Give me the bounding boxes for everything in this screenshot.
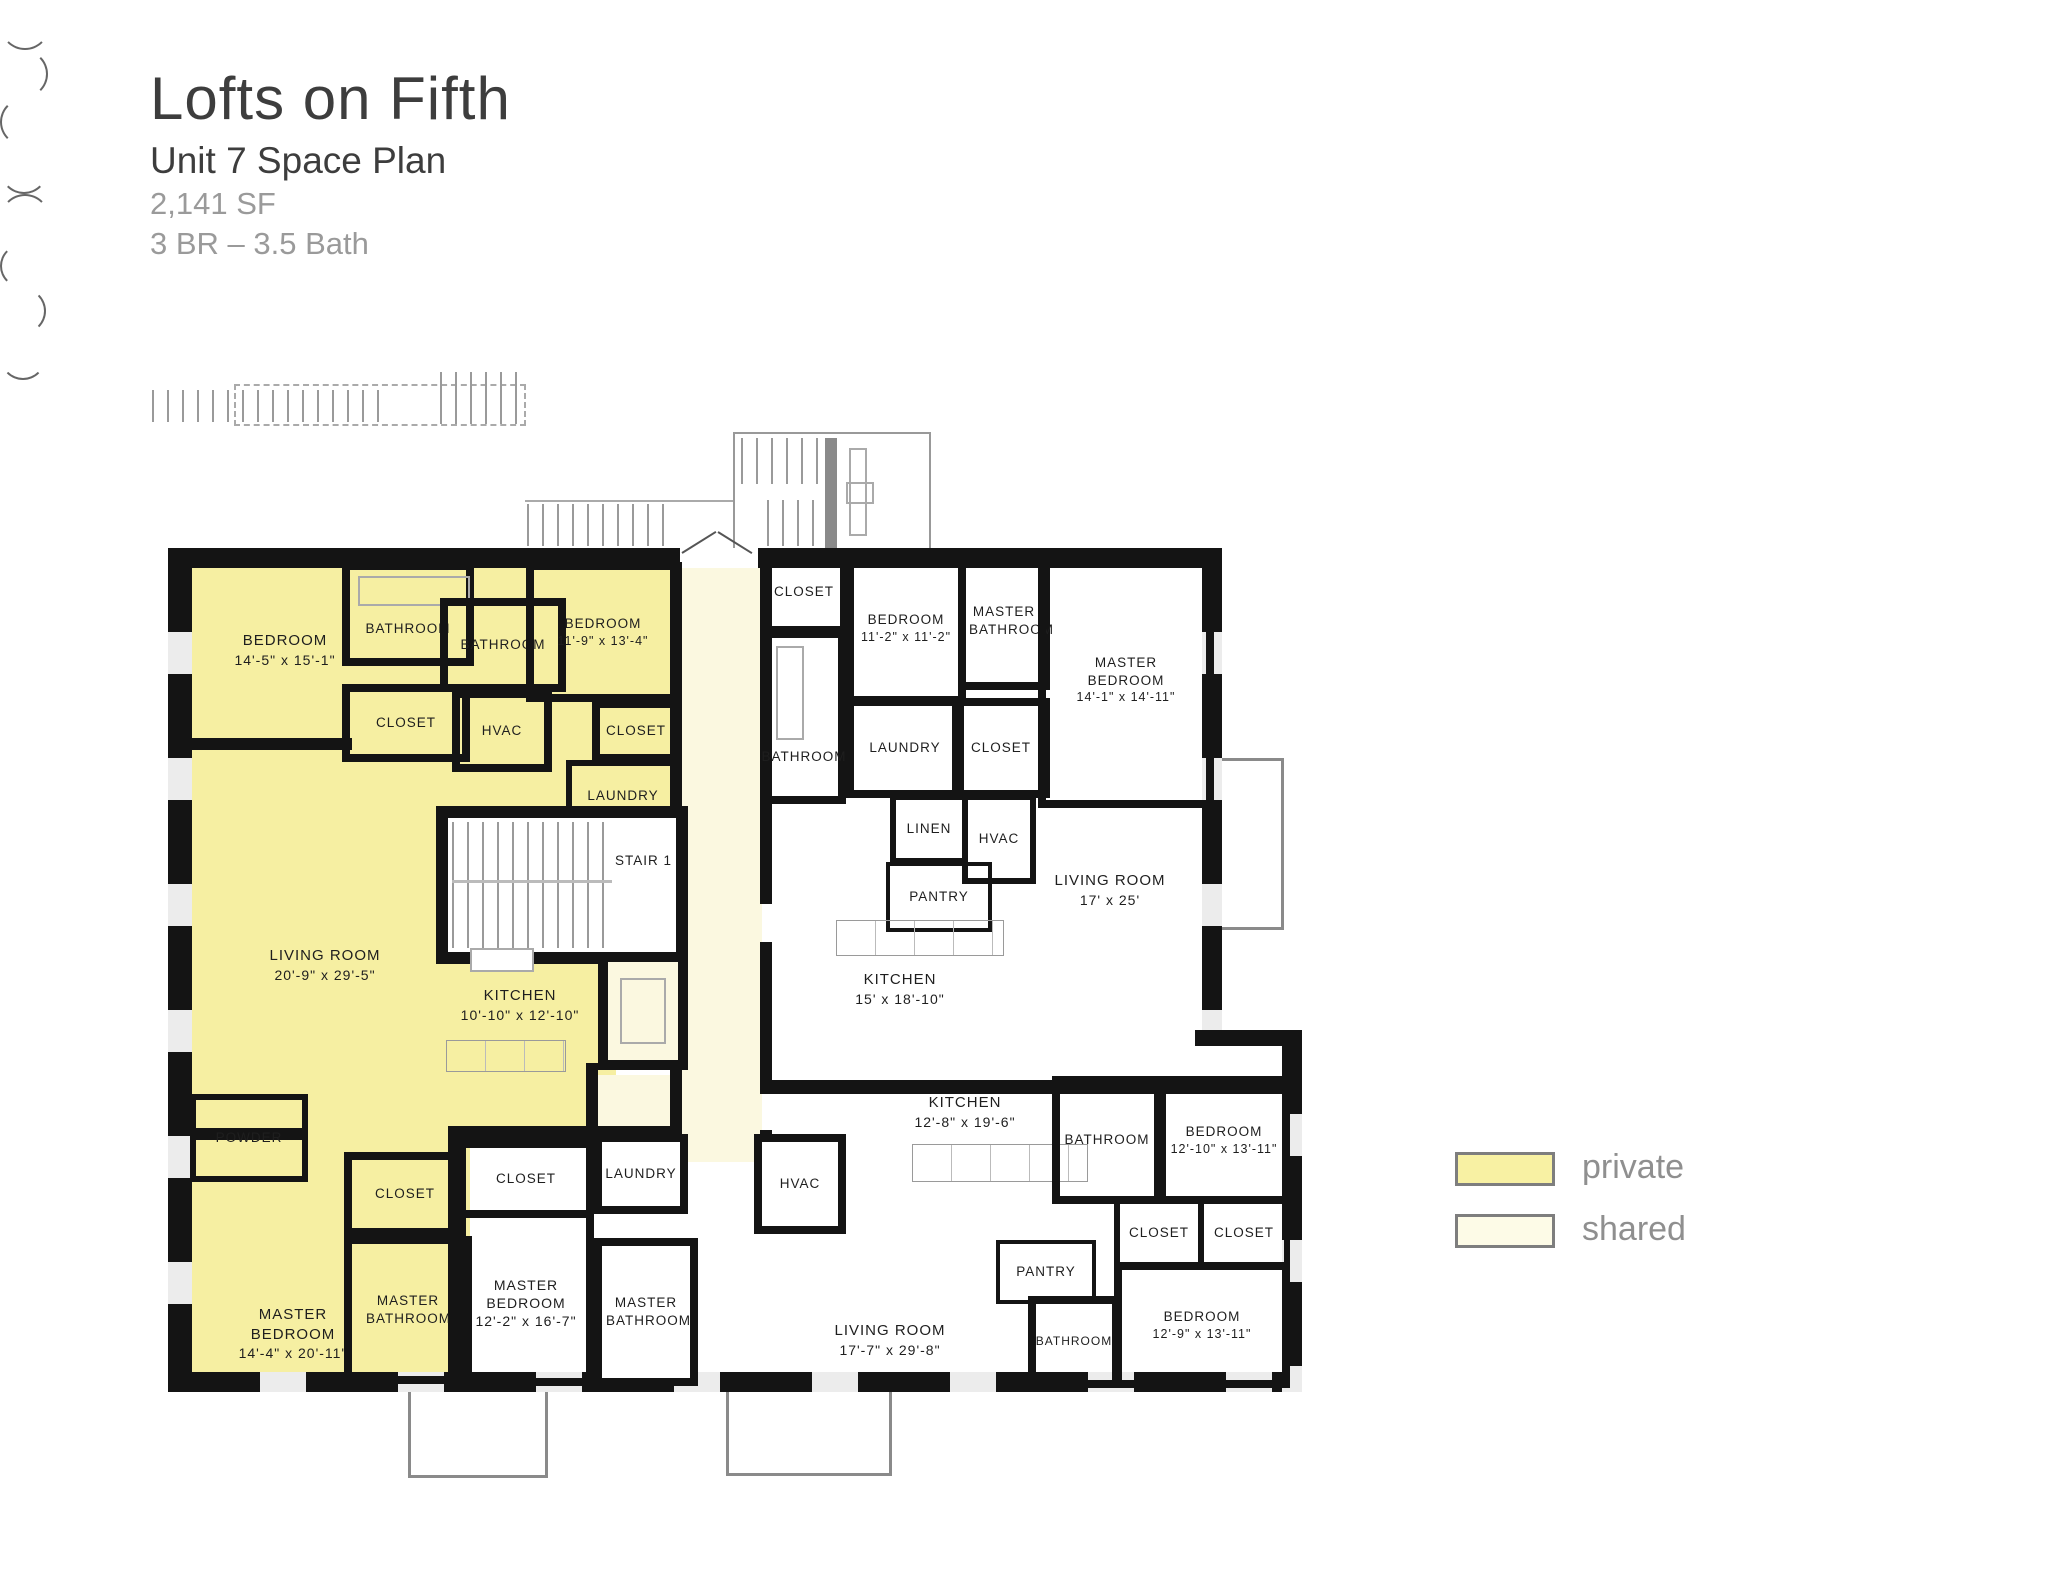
exterior-stair-flight (767, 500, 823, 546)
wall-left (168, 548, 192, 1392)
room-closet-4: CLOSET (762, 552, 846, 632)
kitchen-island (446, 1040, 566, 1072)
room-living-room-1: LIVING ROOM 20'-9" x 29'-5" (205, 930, 445, 1000)
legend-private-label: private (1582, 1148, 1684, 1187)
room-kitchen-2: KITCHEN 15' x 18'-10" (810, 960, 990, 1018)
stove (470, 948, 534, 972)
room-linen: LINEN (890, 794, 968, 864)
room-bedroom-5: BEDROOM 12'-9" x 13'-11" (1114, 1262, 1290, 1388)
room-laundry-2: LAUNDRY (846, 698, 964, 798)
kitchen-island (836, 920, 1004, 956)
shared-corridor (676, 562, 762, 1162)
unit-area: 2,141 SF (150, 186, 276, 222)
room-kitchen-1: KITCHEN 10'-10" x 12'-10" (437, 976, 603, 1034)
room-kitchen-3: KITCHEN 12'-8" x 19'-6" (870, 1084, 1060, 1140)
corridor-wall-right (760, 942, 772, 1094)
bathtub (776, 646, 804, 740)
room-pantry-2: PANTRY (996, 1240, 1096, 1304)
exterior-stair-treads (440, 372, 524, 424)
room-bathroom-5: BATHROOM (1028, 1296, 1120, 1388)
room-hvac-1: HVAC (452, 690, 552, 772)
stair-landing-line (452, 880, 612, 883)
room-master-bedroom-2: MASTER BEDROOM 14'-1" x 14'-11" (1038, 552, 1214, 808)
door-arc (0, 146, 48, 194)
door-arc (0, 244, 44, 288)
door-arc (0, 288, 46, 334)
unit-config: 3 BR – 3.5 Bath (150, 226, 369, 262)
room-closet-3: CLOSET (344, 1152, 466, 1236)
room-master-bedroom-3: MASTER BEDROOM 12'-2" x 16'-7" (462, 1258, 590, 1348)
door-arc (0, 50, 48, 98)
room-closet-1: CLOSET (342, 684, 470, 762)
room-closet-6: CLOSET (458, 1140, 594, 1218)
walkway-treads (527, 504, 677, 546)
shared-lobby (598, 1075, 676, 1133)
bedroom1-wall (192, 738, 352, 750)
floor-plan-page: Lofts on Fifth Unit 7 Space Plan 2,141 S… (0, 0, 2048, 1583)
balcony (1222, 758, 1284, 930)
exterior-stair-flight (741, 438, 823, 484)
room-living-room-3: LIVING ROOM 17'-7" x 29'-8" (790, 1308, 990, 1372)
room-bedroom-2: BEDROOM 11'-9" x 13'-4" (526, 562, 680, 702)
door-arc (0, 98, 48, 146)
room-closet-2: CLOSET (592, 700, 680, 762)
balcony (408, 1392, 548, 1478)
lobby-wall (586, 1063, 598, 1133)
room-master-bathroom-3: MASTER BATHROOM (594, 1238, 698, 1386)
room-closet-8: CLOSET (1198, 1198, 1290, 1268)
stair-treads (452, 822, 612, 948)
legend-shared-label: shared (1582, 1210, 1686, 1249)
room-living-room-2: LIVING ROOM 17' x 25' (1010, 858, 1210, 922)
door-arc (0, 194, 50, 244)
balcony (726, 1392, 892, 1476)
room-closet-7: CLOSET (1114, 1198, 1204, 1268)
room-laundry-3: LAUNDRY (594, 1134, 688, 1214)
room-bedroom-3: BEDROOM 11'-2" x 11'-2" (846, 552, 966, 704)
room-bedroom-4: BEDROOM 12'-10" x 13'-11" (1158, 1076, 1290, 1204)
elevator-car (620, 978, 666, 1044)
room-bathroom-4: BATHROOM (1052, 1076, 1162, 1204)
room-powder: POWDER (190, 1094, 308, 1182)
elevator (598, 952, 688, 1070)
legend-private-swatch (1455, 1152, 1555, 1186)
door-arc (0, 0, 50, 50)
page-subtitle: Unit 7 Space Plan (150, 140, 446, 182)
room-hvac-3: HVAC (754, 1134, 846, 1234)
door-arc (0, 334, 46, 380)
exterior-stair-treads (152, 390, 390, 422)
stair-divider-wall (825, 438, 837, 548)
room-master-bathroom-1: MASTER BATHROOM (344, 1236, 472, 1384)
stair-landing (846, 482, 874, 504)
room-closet-5: CLOSET (952, 698, 1050, 798)
page-title: Lofts on Fifth (150, 64, 511, 133)
room-bathroom-3: BATHROOM (762, 630, 846, 804)
walkway-line (525, 500, 763, 502)
room-stair-1: STAIR 1 (436, 806, 688, 964)
room-master-bathroom-2: MASTER BATHROOM (958, 552, 1050, 690)
legend-shared-swatch (1455, 1214, 1555, 1248)
